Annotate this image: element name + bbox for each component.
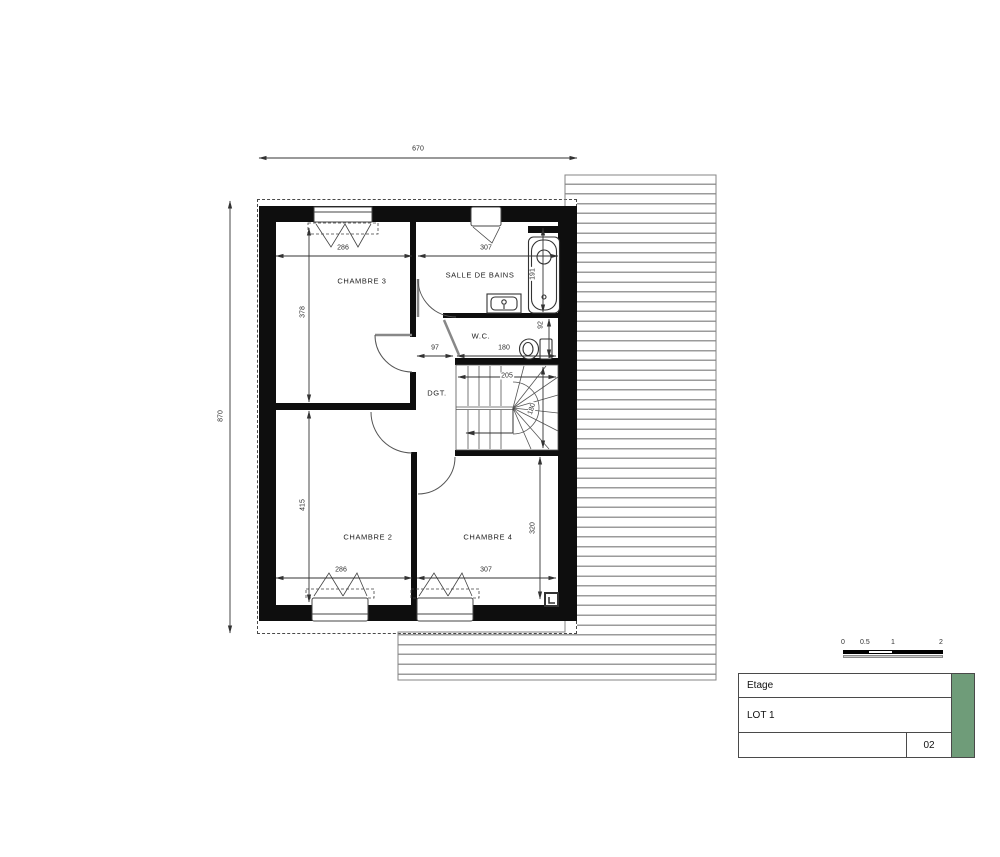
dimension-lines [230, 158, 577, 633]
title-block-sheet-row: 02 [739, 733, 951, 757]
sink [487, 294, 521, 313]
door-wc [444, 320, 459, 355]
dim-overall-width: 670 [411, 146, 425, 153]
dim-chambre4-depth: 320 [530, 521, 537, 535]
dim-bottom-left: 286 [334, 567, 348, 574]
duct-corner-box [545, 593, 558, 606]
floor-plan-sheet: 670 870 286 307 378 191 97 180 92 205 18… [0, 0, 1000, 857]
scale-tick-1: 1 [891, 639, 895, 646]
scale-bar: 0 0.5 1 2 [840, 639, 950, 661]
door-sdb [418, 279, 456, 317]
lot-name: LOT 1 [747, 710, 775, 721]
window-sdb [471, 207, 501, 243]
scale-bar-lower [843, 655, 943, 659]
dim-landing: 97 [430, 345, 440, 352]
dim-top-right: 307 [479, 245, 493, 252]
title-block-level-row: Etage [739, 674, 951, 698]
door-chambre3 [375, 335, 412, 372]
room-label-salle-de-bains: SALLE DE BAINS [446, 271, 515, 279]
dim-wc-depth: 92 [538, 320, 545, 330]
sheet-number: 02 [923, 740, 934, 751]
title-block: Etage LOT 1 02 [738, 673, 975, 758]
dim-top-left: 286 [336, 245, 350, 252]
room-label-chambre2: CHAMBRE 2 [343, 533, 392, 541]
door-chambre2 [371, 412, 412, 453]
door-chambre4 [418, 457, 455, 494]
level-name: Etage [747, 680, 773, 691]
scale-tick-05: 0.5 [860, 639, 870, 646]
room-label-dgt: DGT. [427, 389, 446, 397]
sheet-number-cell: 02 [906, 733, 951, 757]
title-block-lot-row: LOT 1 [739, 698, 951, 733]
window-chambre3 [308, 207, 378, 247]
dim-chambre3-depth: 378 [300, 305, 307, 319]
dim-overall-height: 870 [218, 409, 225, 423]
room-label-wc: W.C. [472, 332, 491, 340]
dim-wc-width: 180 [497, 345, 511, 352]
room-label-chambre4: CHAMBRE 4 [463, 533, 512, 541]
scale-tick-0: 0 [841, 639, 845, 646]
dim-chambre2-depth: 415 [300, 498, 307, 512]
window-chambre4 [411, 573, 479, 621]
scale-tick-2: 2 [939, 639, 943, 646]
room-label-chambre3: CHAMBRE 3 [337, 277, 386, 285]
dim-stairs-width: 205 [500, 373, 514, 380]
title-block-accent-bar [951, 674, 974, 757]
scale-bar-upper [843, 650, 943, 654]
dim-bottom-right: 307 [479, 567, 493, 574]
dim-bath-depth: 191 [530, 267, 537, 281]
fixtures [487, 237, 560, 606]
stair-direction-arrow [466, 408, 513, 433]
windows [306, 207, 501, 621]
window-chambre2 [306, 573, 374, 621]
